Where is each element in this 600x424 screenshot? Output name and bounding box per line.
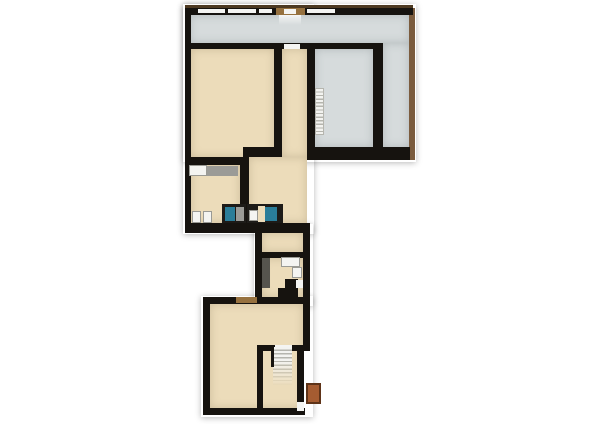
large-room-right-wall	[274, 43, 282, 147]
toilet-icon	[192, 211, 201, 223]
gray-room-right-wall	[373, 43, 383, 160]
stairwell-side-wall	[257, 345, 263, 415]
side-passage-floor	[383, 43, 409, 147]
lower-staircase-fade	[273, 347, 292, 385]
upper-staircase	[315, 88, 324, 135]
step-wall	[243, 147, 282, 157]
door-light-spill	[279, 15, 301, 25]
exterior-trim-right	[409, 8, 415, 160]
bathroom-counter-gray	[207, 166, 238, 176]
corridor-floor	[282, 49, 307, 157]
washbasin-icon	[249, 210, 258, 221]
lower-wall-right-upper	[303, 297, 310, 351]
exterior-door-icon	[236, 297, 257, 303]
vanity-counter-gray	[236, 207, 244, 221]
interior-door-opening	[284, 44, 300, 49]
connector-upper-floor	[262, 233, 303, 252]
lower-wall-bottom	[203, 408, 305, 415]
connector-left-wall	[255, 233, 262, 303]
floor-plan-canvas	[0, 0, 600, 424]
window-icon	[228, 9, 256, 13]
upper-wing-bottom-wall	[185, 223, 310, 233]
large-room-floor	[191, 49, 274, 157]
outer-wall-left	[185, 8, 191, 233]
corridor-right-wall	[307, 43, 315, 157]
connector-right-wall	[303, 233, 310, 303]
teal-sink-icon	[265, 207, 277, 221]
winder-stair-dark	[278, 288, 286, 297]
washbasin-icon	[281, 257, 300, 267]
lower-wall-left	[203, 297, 210, 415]
closet-icon	[262, 258, 270, 288]
washbasin-icon	[292, 267, 302, 278]
large-room-bottom-wall	[185, 157, 243, 165]
window-icon	[259, 9, 272, 13]
bathroom-counter-white	[189, 165, 207, 176]
entry-door-glass	[284, 9, 296, 14]
gray-room-bottom-wall	[307, 147, 410, 160]
teal-sink-icon	[225, 207, 235, 221]
chimney-icon	[306, 383, 321, 404]
toilet-icon	[203, 211, 212, 223]
vanity-gap	[258, 206, 265, 222]
winder-stair-landing	[296, 280, 303, 288]
side-door-opening	[297, 402, 304, 411]
stair-banister	[271, 345, 274, 367]
window-icon	[307, 9, 335, 13]
window-icon	[198, 9, 225, 13]
